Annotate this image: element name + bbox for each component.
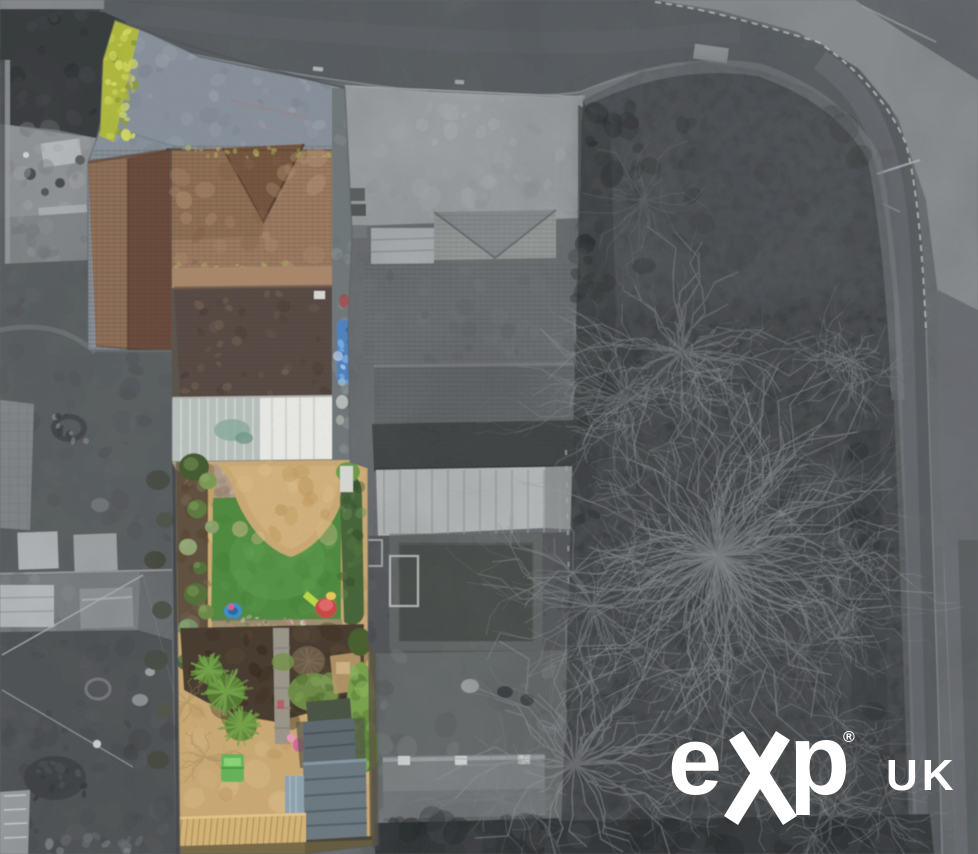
svg-text:e: e (668, 706, 720, 815)
svg-text:UK: UK (886, 751, 958, 800)
svg-text:p: p (789, 704, 850, 816)
svg-text:®: ® (843, 729, 855, 746)
